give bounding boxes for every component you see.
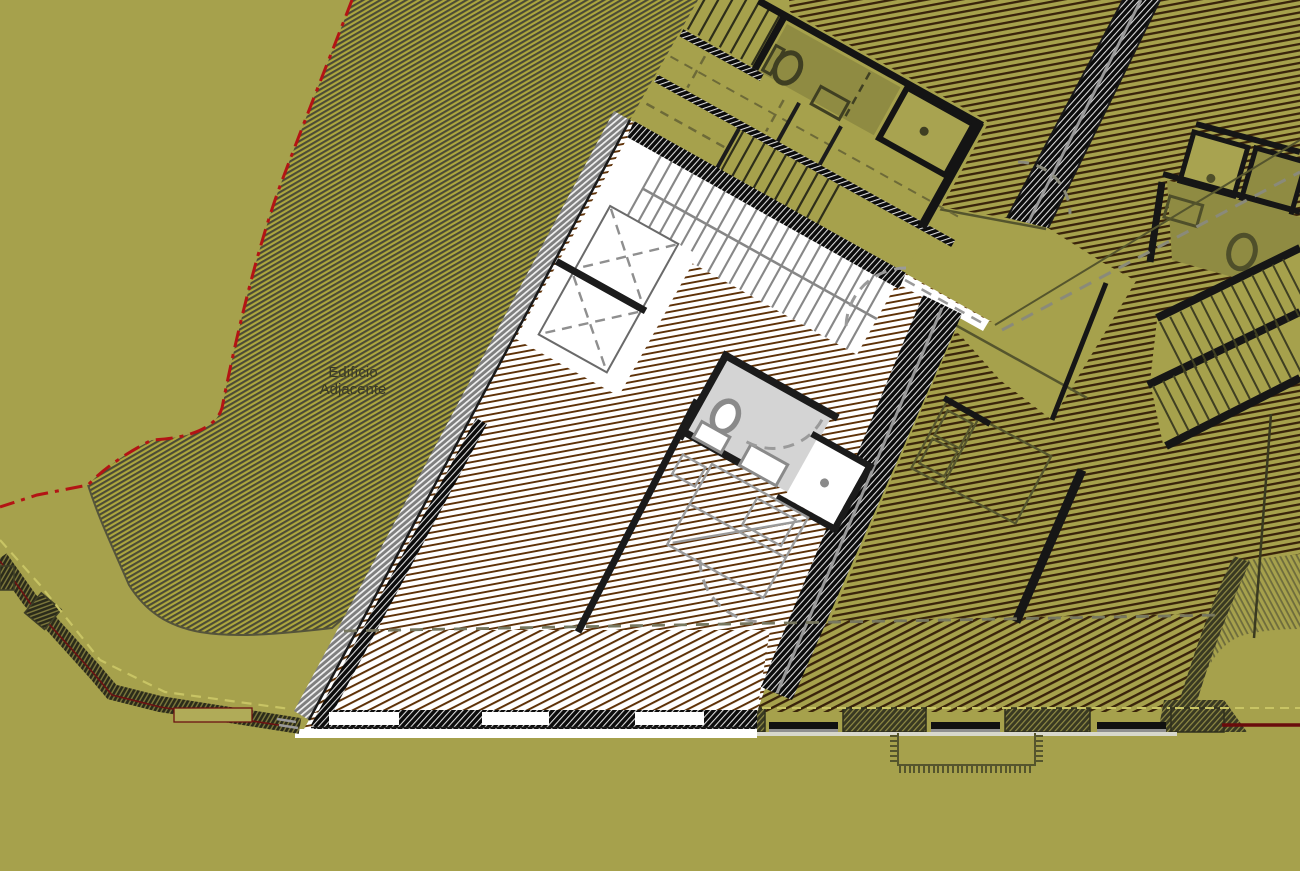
svg-text:Edifício: Edifício bbox=[328, 364, 377, 381]
svg-text:Adjacente: Adjacente bbox=[320, 381, 387, 398]
